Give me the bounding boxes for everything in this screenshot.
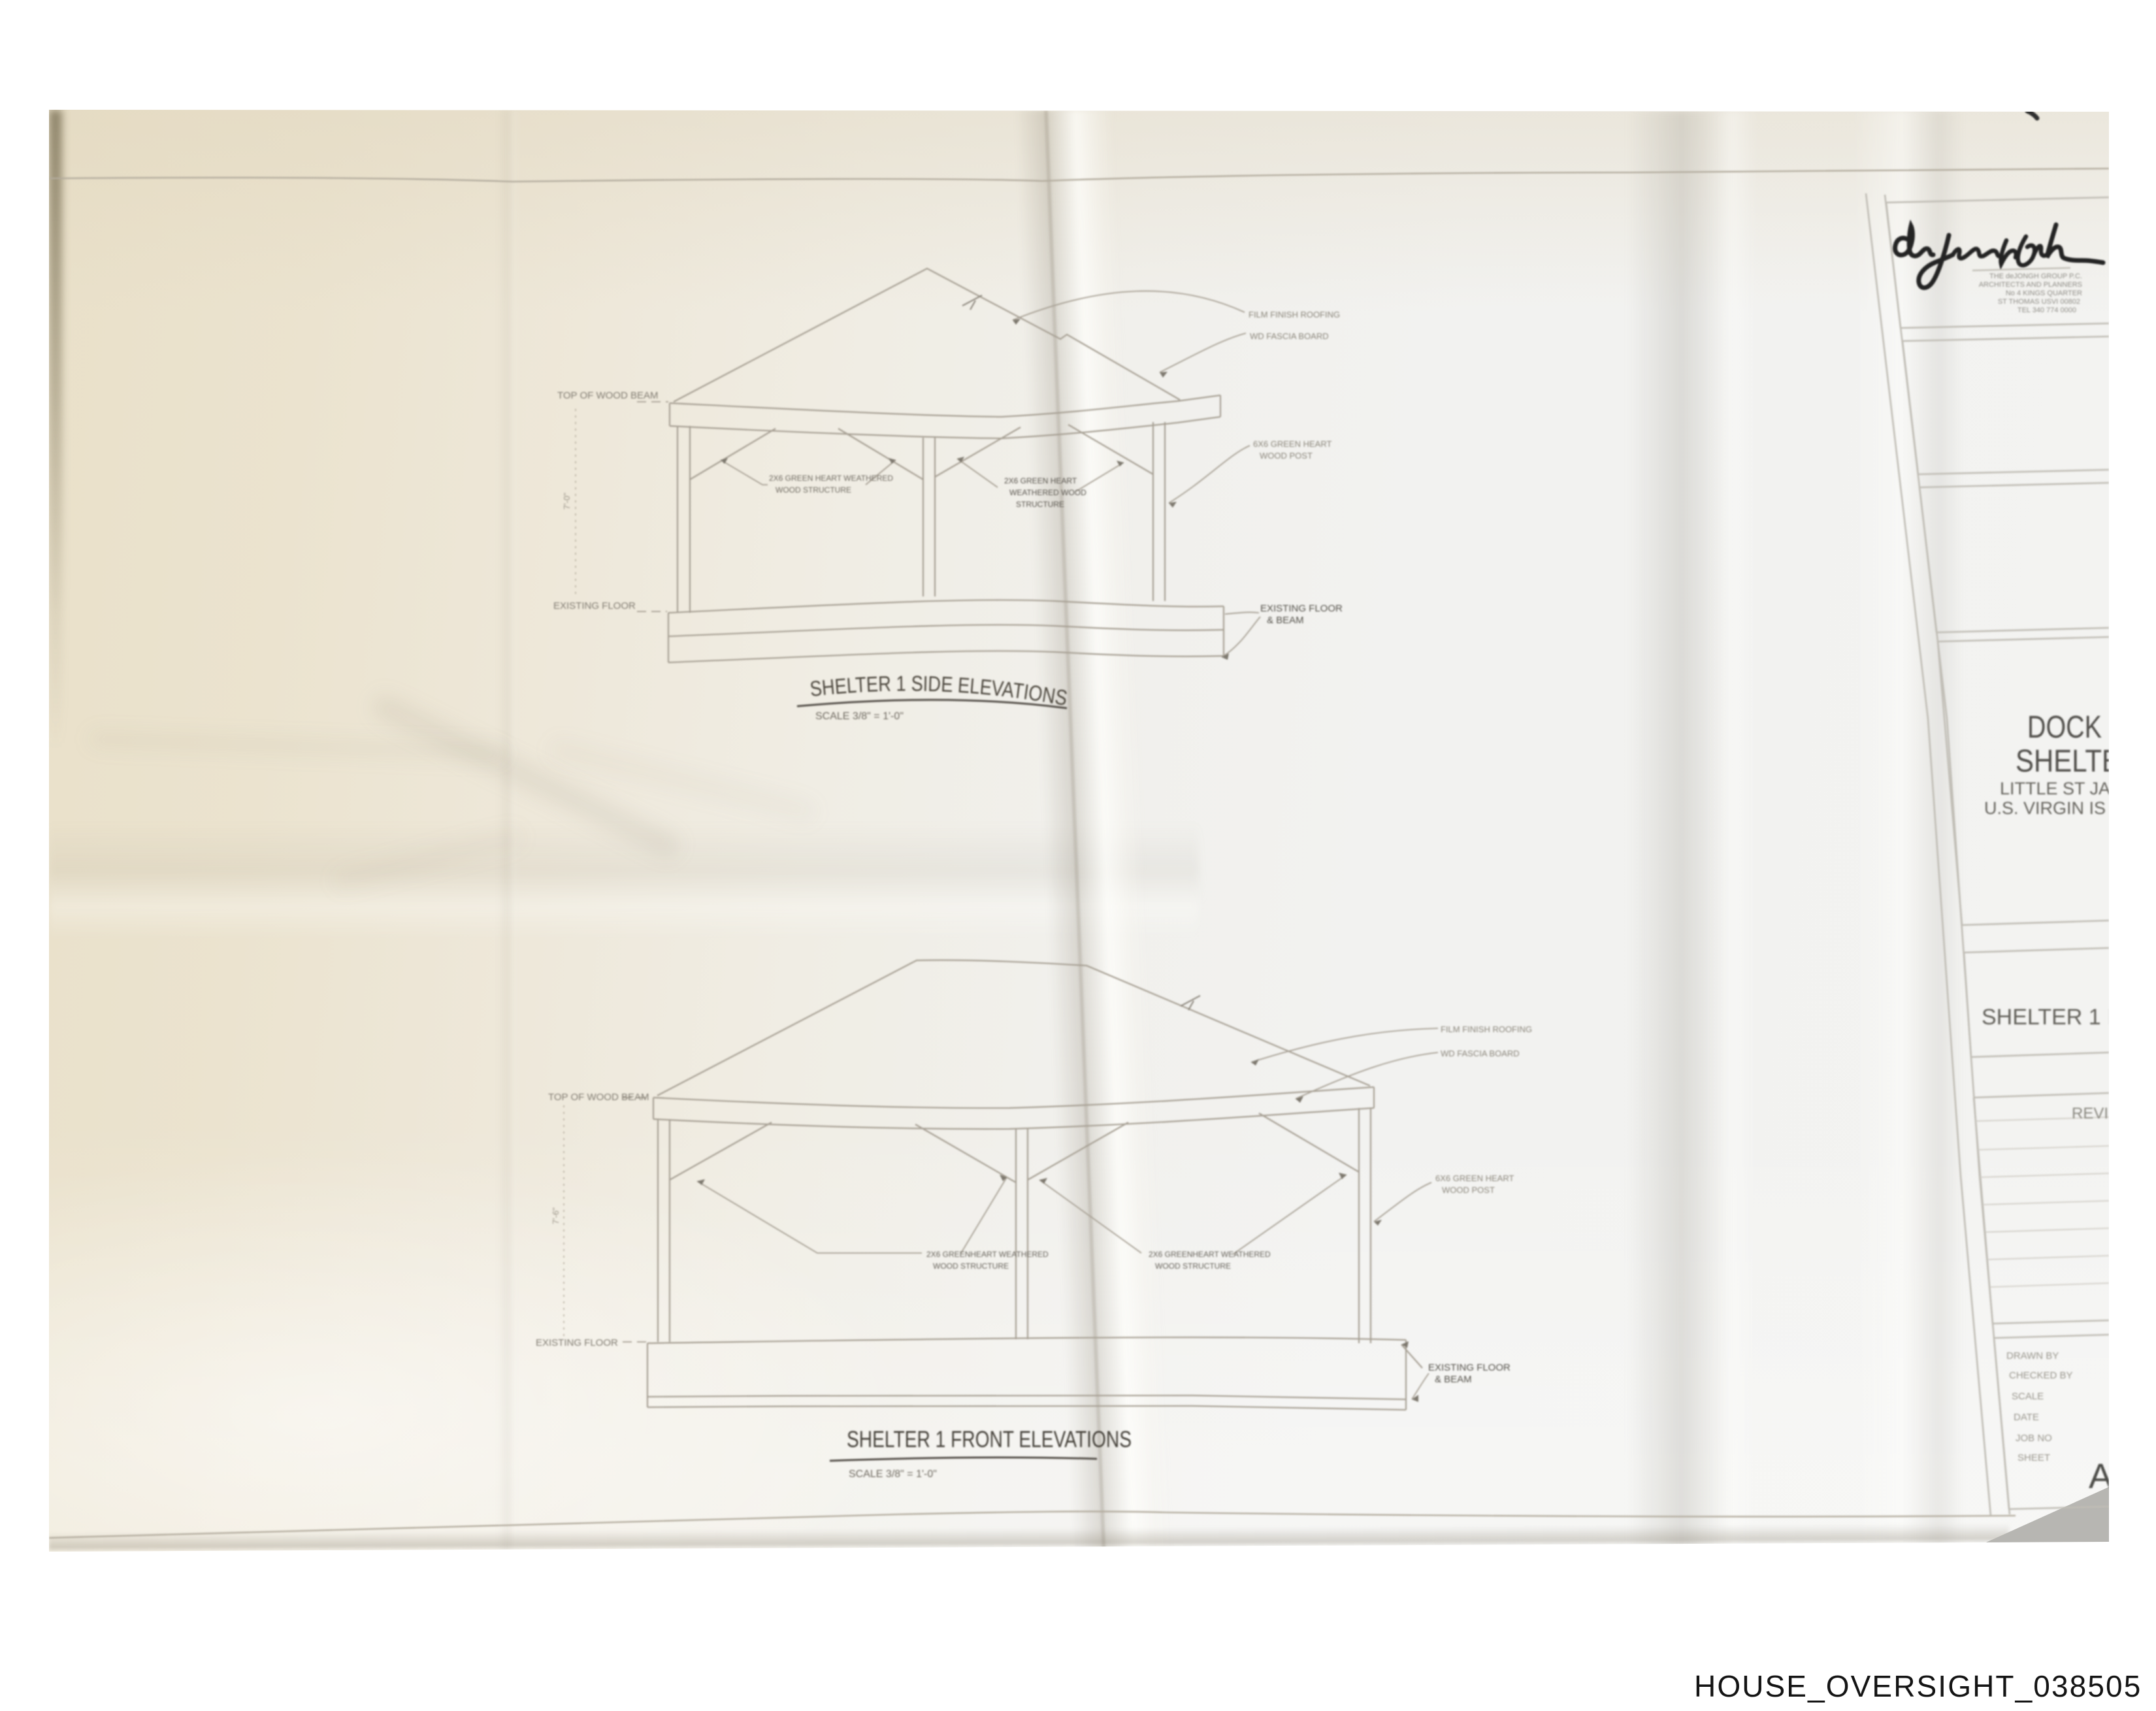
svg-text:U.S. VIRGIN IS: U.S. VIRGIN IS bbox=[1984, 798, 2106, 818]
svg-text:SCALE 3/8" = 1'-0": SCALE 3/8" = 1'-0" bbox=[815, 711, 904, 722]
svg-text:SCALE 3/8" = 1'-0": SCALE 3/8" = 1'-0" bbox=[849, 1469, 937, 1480]
svg-text:SHELTER 1 FRONT ELEVATIONS: SHELTER 1 FRONT ELEVATIONS bbox=[847, 1427, 1132, 1452]
svg-text:ARCHITECTS AND PLANNERS: ARCHITECTS AND PLANNERS bbox=[1979, 281, 2082, 289]
svg-text:TOP OF WOOD BEAM: TOP OF WOOD BEAM bbox=[557, 390, 658, 401]
svg-text:7'-0": 7'-0" bbox=[562, 493, 572, 510]
svg-text:SHEET: SHEET bbox=[2017, 1452, 2050, 1463]
svg-text:THE deJONGH GROUP P.C.: THE deJONGH GROUP P.C. bbox=[1989, 272, 2082, 280]
svg-text:EXISTING FLOOR: EXISTING FLOOR bbox=[536, 1337, 618, 1348]
svg-text:WEATHERED WOOD: WEATHERED WOOD bbox=[1009, 488, 1086, 497]
svg-text:WOOD STRUCTURE: WOOD STRUCTURE bbox=[1155, 1262, 1231, 1271]
svg-text:SCALE: SCALE bbox=[2012, 1391, 2044, 1402]
svg-text:2X6 GREEN HEART: 2X6 GREEN HEART bbox=[1004, 476, 1077, 485]
svg-text:2X6 GREENHEART WEATHERED: 2X6 GREENHEART WEATHERED bbox=[926, 1250, 1049, 1259]
svg-text:& BEAM: & BEAM bbox=[1435, 1374, 1472, 1385]
svg-text:EXISTING FLOOR: EXISTING FLOOR bbox=[553, 600, 636, 611]
svg-text:TOP OF WOOD BEAM: TOP OF WOOD BEAM bbox=[548, 1092, 649, 1103]
svg-text:& BEAM: & BEAM bbox=[1267, 615, 1304, 626]
svg-text:JOB NO: JOB NO bbox=[2016, 1433, 2052, 1444]
svg-text:ST THOMAS USVI 00802: ST THOMAS USVI 00802 bbox=[1998, 298, 2080, 306]
svg-text:FILM FINISH ROOFING: FILM FINISH ROOFING bbox=[1249, 310, 1340, 319]
svg-text:DRAWN BY: DRAWN BY bbox=[2006, 1350, 2059, 1361]
svg-text:EXISTING FLOOR: EXISTING FLOOR bbox=[1260, 603, 1343, 614]
svg-text:SHELTE: SHELTE bbox=[2016, 744, 2109, 779]
svg-text:WD FASCIA BOARD: WD FASCIA BOARD bbox=[1441, 1049, 1520, 1058]
svg-text:WOOD POST: WOOD POST bbox=[1442, 1185, 1495, 1195]
svg-text:DOCK: DOCK bbox=[2027, 710, 2102, 745]
svg-text:WOOD STRUCTURE: WOOD STRUCTURE bbox=[933, 1262, 1009, 1271]
svg-text:2X6 GREEN HEART WEATHERED: 2X6 GREEN HEART WEATHERED bbox=[769, 474, 893, 483]
svg-text:EXISTING FLOOR: EXISTING FLOOR bbox=[1428, 1362, 1511, 1373]
svg-text:6X6 GREEN HEART: 6X6 GREEN HEART bbox=[1435, 1173, 1514, 1183]
svg-text:No 4 KINGS QUARTER: No 4 KINGS QUARTER bbox=[2006, 289, 2082, 297]
svg-text:REVIS: REVIS bbox=[2072, 1105, 2109, 1122]
svg-text:STRUCTURE: STRUCTURE bbox=[1016, 500, 1064, 509]
svg-text:FILM FINISH ROOFING: FILM FINISH ROOFING bbox=[1441, 1024, 1532, 1034]
svg-text:6X6 GREEN HEART: 6X6 GREEN HEART bbox=[1253, 439, 1331, 449]
svg-text:2X6 GREENHEART WEATHERED: 2X6 GREENHEART WEATHERED bbox=[1149, 1250, 1271, 1259]
svg-text:DATE: DATE bbox=[2014, 1412, 2039, 1423]
svg-text:A: A bbox=[2089, 1457, 2109, 1496]
svg-text:LITTLE ST JA: LITTLE ST JA bbox=[2000, 779, 2109, 798]
svg-text:WOOD POST: WOOD POST bbox=[1260, 451, 1313, 461]
svg-text:TEL 340 774 0000: TEL 340 774 0000 bbox=[2017, 306, 2076, 314]
svg-text:SHELTER 1 EL: SHELTER 1 EL bbox=[1982, 1005, 2109, 1030]
svg-text:WD FASCIA BOARD: WD FASCIA BOARD bbox=[1250, 331, 1329, 341]
svg-text:WOOD STRUCTURE: WOOD STRUCTURE bbox=[776, 485, 851, 495]
svg-text:7'-6": 7'-6" bbox=[551, 1207, 561, 1224]
svg-text:CHECKED BY: CHECKED BY bbox=[2009, 1370, 2073, 1381]
